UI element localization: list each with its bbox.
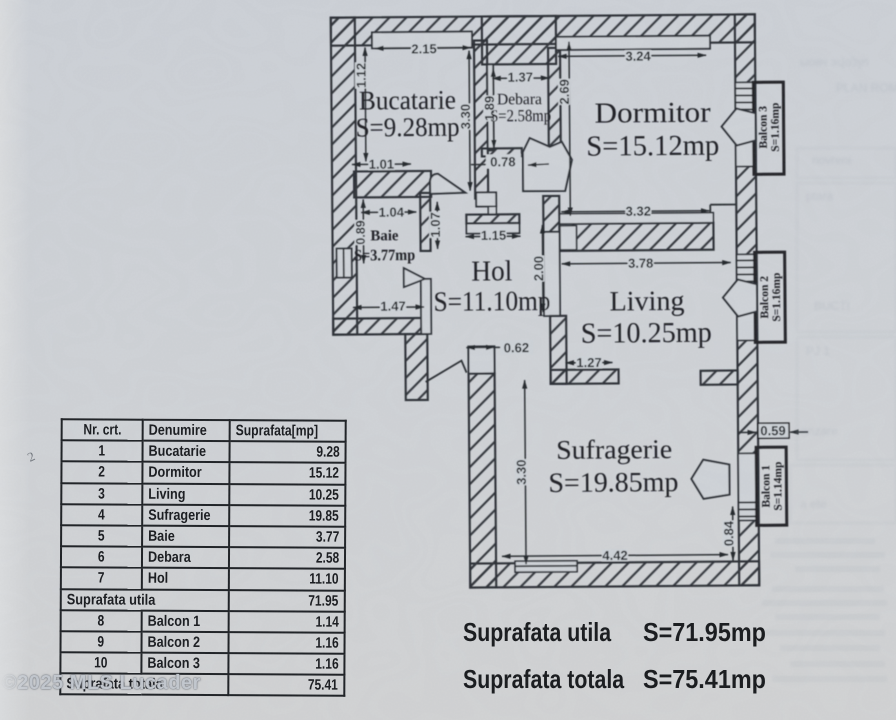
svg-text:1.37: 1.37 — [508, 70, 533, 85]
svg-text:S=11.10mp: S=11.10mp — [433, 286, 550, 318]
svg-text:3.30: 3.30 — [458, 104, 473, 129]
svg-text:0.78: 0.78 — [490, 154, 515, 169]
svg-text:1.12: 1.12 — [354, 63, 369, 88]
svg-text:ыовч эվօלյո: ыовч эվօלյո — [800, 55, 869, 69]
svg-text:S=1.14mp: S=1.14mp — [772, 462, 784, 511]
svg-text:Dormitor: Dormitor — [594, 97, 711, 130]
svg-text:1.27: 1.27 — [576, 355, 601, 370]
svg-text:S=10.25mp: S=10.25mp — [581, 317, 712, 350]
svg-text:Sufragerie: Sufragerie — [556, 434, 672, 465]
svg-text:1.47: 1.47 — [380, 299, 405, 314]
svg-text:3.78: 3.78 — [628, 256, 653, 271]
svg-text:S=2.58mp: S=2.58mp — [490, 106, 551, 125]
svg-text:S=9.28mp: S=9.28mp — [356, 112, 460, 143]
svg-text:2.69: 2.69 — [557, 79, 572, 104]
svg-text:1.04: 1.04 — [379, 205, 405, 220]
svg-text:0.89: 0.89 — [354, 220, 368, 244]
svg-text:0.59: 0.59 — [760, 423, 785, 438]
svg-text:1.15: 1.15 — [481, 228, 506, 243]
svg-text:S=3.77mp: S=3.77mp — [354, 247, 415, 264]
svg-text:PJ 1: PJ 1 — [806, 344, 830, 358]
svg-text:S=19.85mp: S=19.85mp — [548, 467, 678, 499]
svg-text:Balcon 1: Balcon 1 — [760, 465, 772, 508]
svg-text:Baie: Baie — [370, 228, 398, 244]
svg-text:2.00: 2.00 — [531, 256, 546, 281]
svg-text:BUCTI: BUCTI — [814, 299, 850, 313]
svg-text:1.07: 1.07 — [428, 212, 443, 237]
svg-text:0.62: 0.62 — [504, 340, 529, 355]
svg-text:3.24: 3.24 — [625, 49, 651, 64]
svg-text:Balcon 3: Balcon 3 — [757, 106, 769, 149]
svg-text:Balcon 2: Balcon 2 — [759, 276, 771, 319]
svg-text:S=1.16mp: S=1.16mp — [769, 103, 781, 152]
svg-text:4.42: 4.42 — [602, 548, 627, 563]
svg-text:3.30: 3.30 — [514, 459, 529, 484]
svg-text:S=15.12mp: S=15.12mp — [586, 130, 719, 163]
svg-text:PLAN ROMANA: PLAN ROMANA — [836, 81, 896, 95]
svg-text:novreni: novreni — [812, 153, 851, 167]
svg-text:Living: Living — [609, 286, 684, 318]
svg-text:0.84: 0.84 — [721, 520, 736, 546]
svg-text:Hol: Hol — [471, 255, 512, 287]
svg-text:2.15: 2.15 — [411, 41, 436, 56]
svg-text:3.32: 3.32 — [626, 204, 651, 219]
svg-text:S=1.16mp: S=1.16mp — [771, 273, 783, 322]
svg-text:a ete: a ete — [800, 497, 827, 511]
svg-text:ptara: ptara — [806, 189, 834, 203]
svg-text:vanzare: vanzare — [795, 424, 838, 438]
svg-text:1.01: 1.01 — [369, 157, 394, 172]
